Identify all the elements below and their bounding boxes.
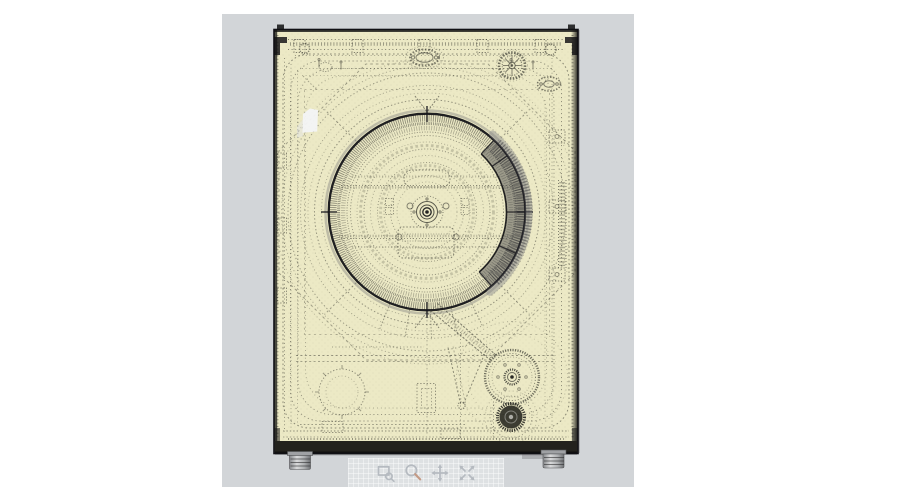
page-background [0,0,900,500]
foot-left [288,452,313,470]
zoom-extents-button[interactable] [456,462,478,484]
zoom-button[interactable] [402,462,424,484]
washing-machine-model [274,25,580,470]
viewport-panel[interactable] [222,14,634,487]
pan-button[interactable] [429,462,451,484]
foot-right [541,450,566,468]
zoom-window-icon [376,463,396,483]
magnifier-icon [403,463,423,483]
zoom-window-button[interactable] [375,462,397,484]
viewport-toolbar [348,458,504,487]
expand-arrows-icon [457,463,477,483]
model-canvas[interactable] [222,14,634,487]
pan-arrows-icon [430,463,450,483]
